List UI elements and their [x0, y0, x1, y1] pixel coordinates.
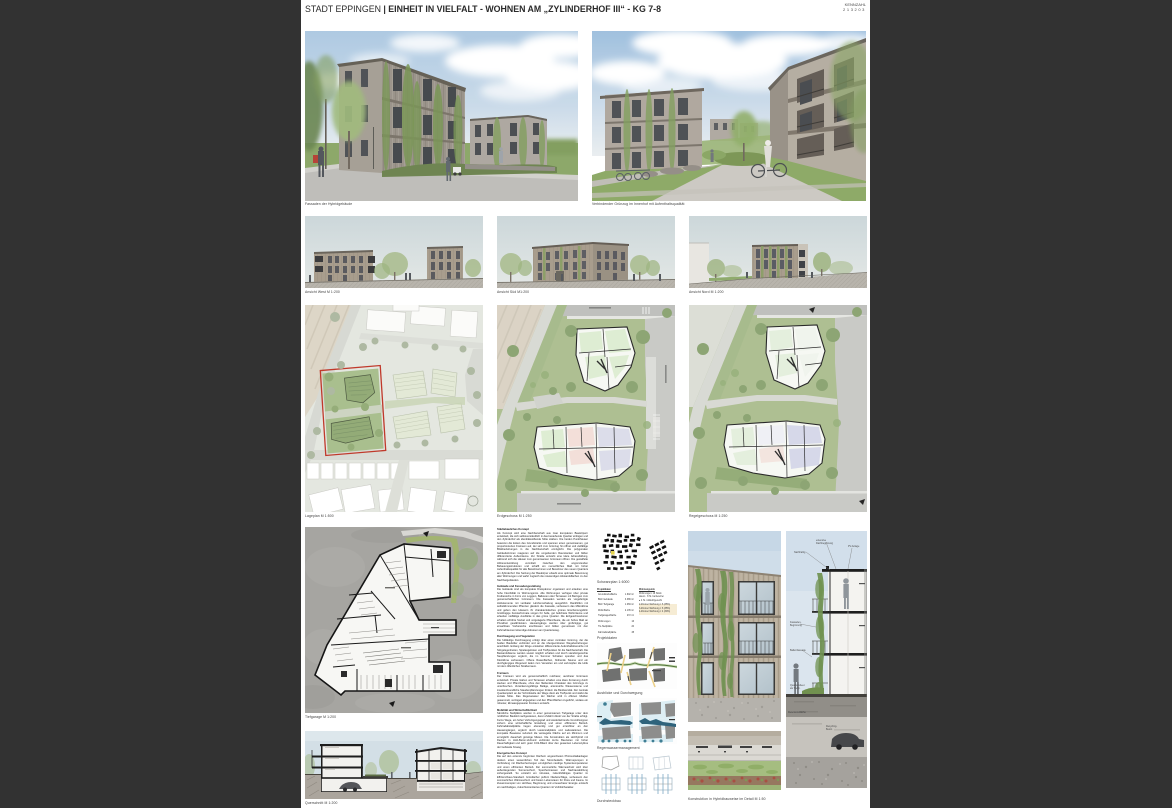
svg-text:Dachbegrünung: Dachbegrünung	[816, 542, 834, 545]
svg-text:Begrünung: Begrünung	[790, 624, 802, 627]
svg-text:Retentionsfläche: Retentionsfläche	[788, 711, 806, 714]
svg-text:Nachhaltig: Nachhaltig	[794, 551, 806, 554]
svg-text:als Treffp.: als Treffp.	[790, 687, 801, 690]
svg-text:Beton: Beton	[826, 728, 833, 731]
svg-text:PV-Anlage: PV-Anlage	[848, 545, 860, 548]
